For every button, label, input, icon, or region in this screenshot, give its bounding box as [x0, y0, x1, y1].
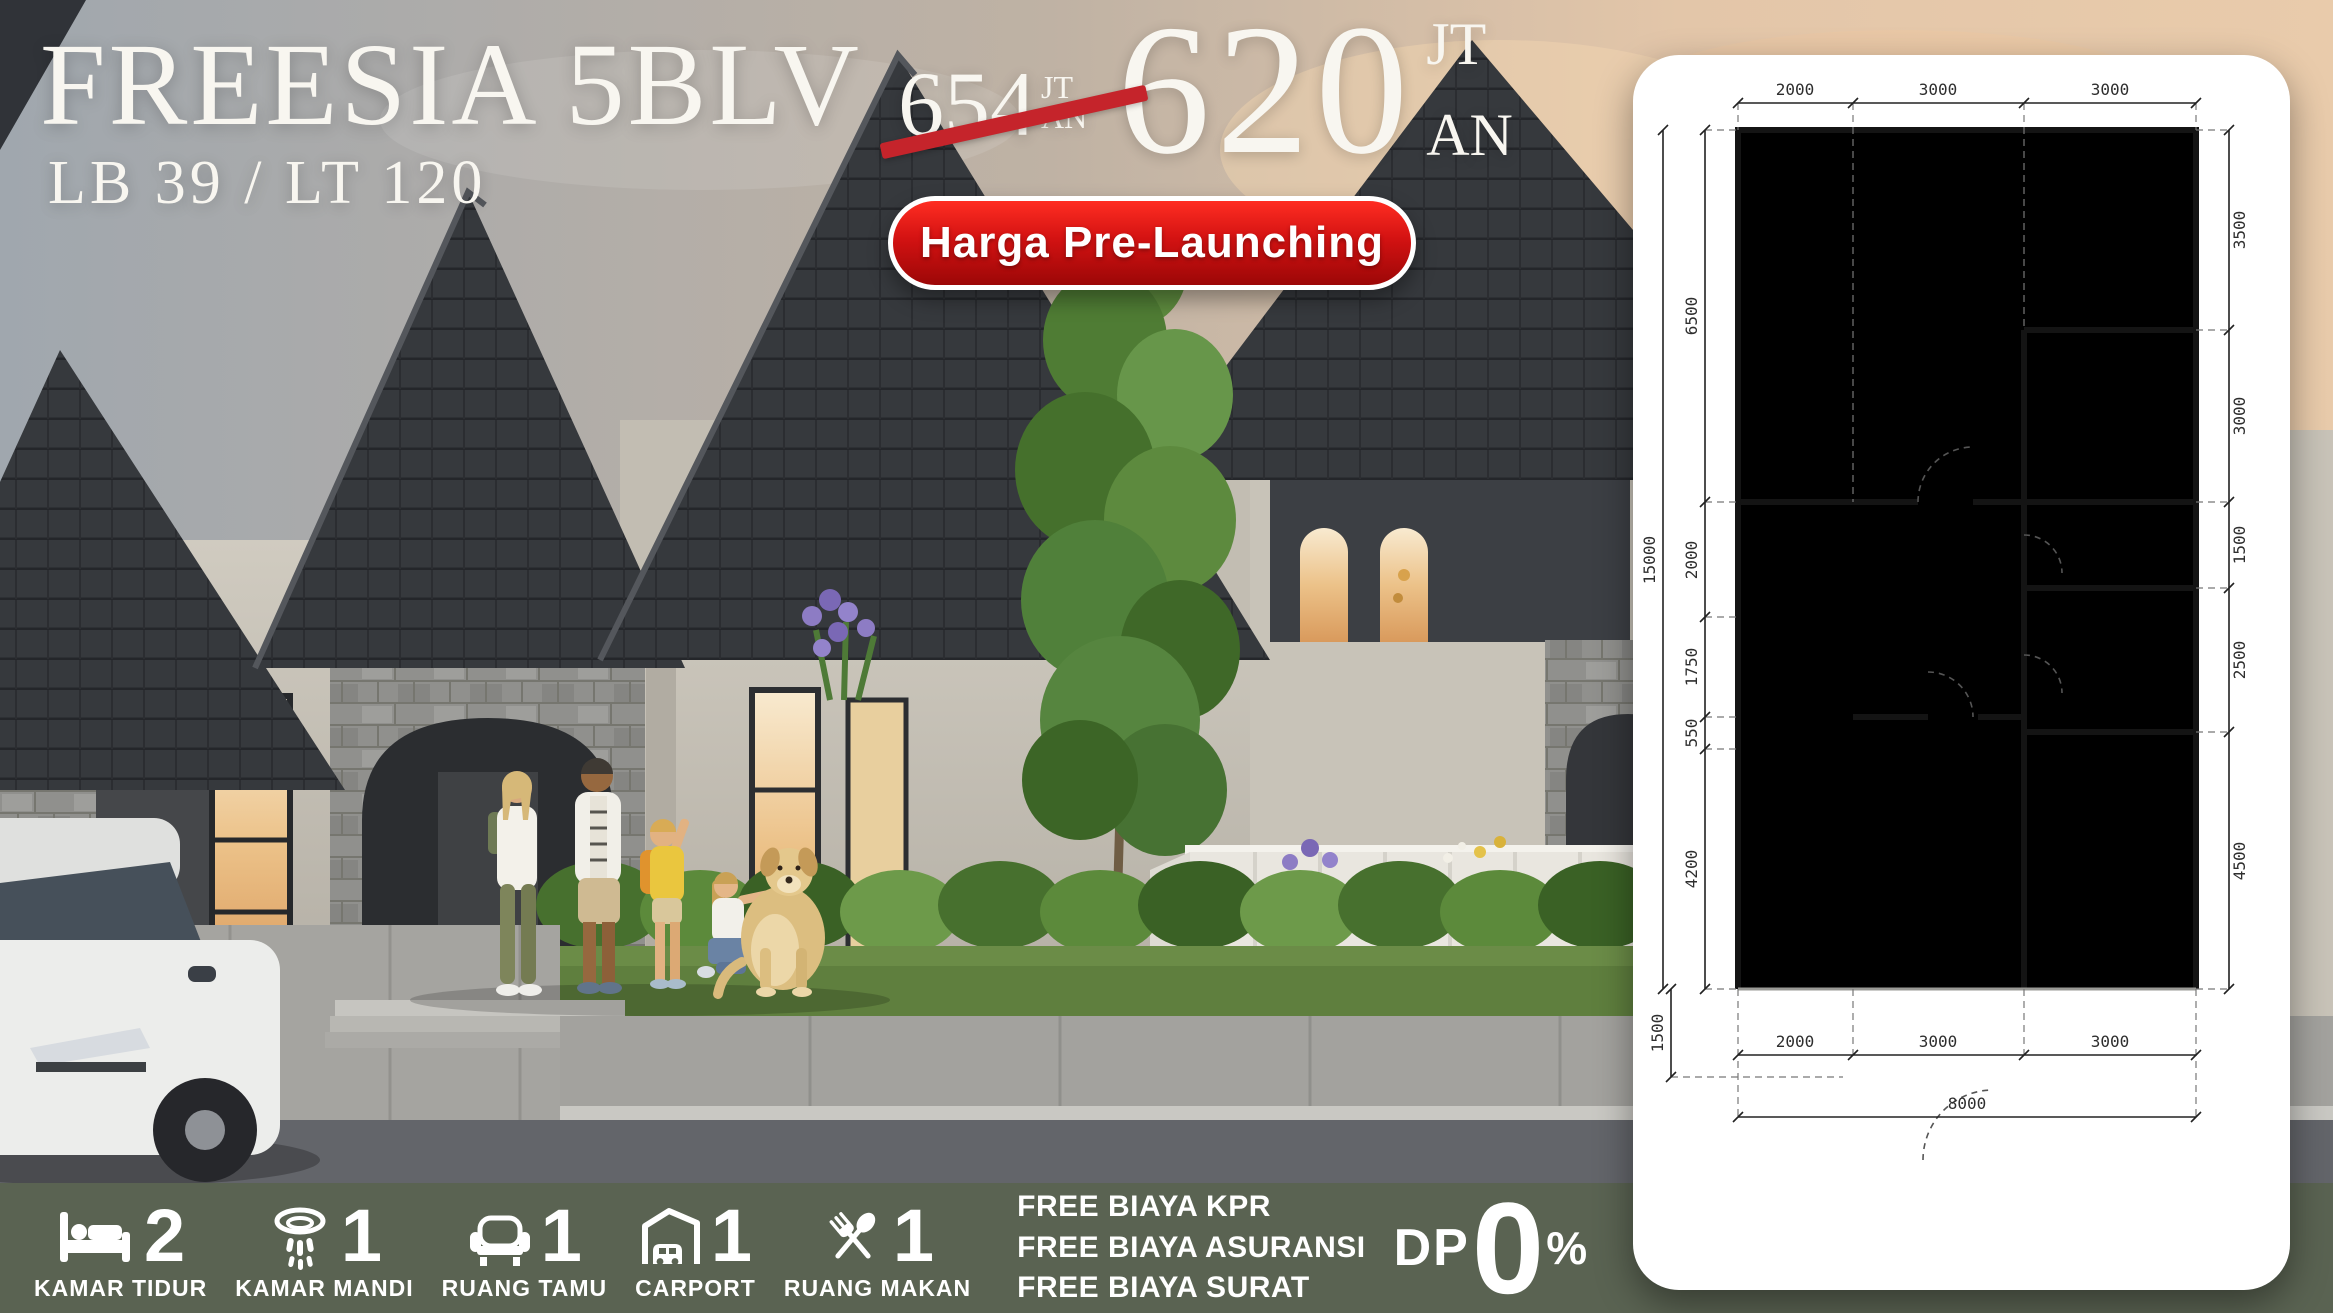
feature-bedrooms-label: KAMAR TIDUR — [34, 1275, 207, 1302]
dp-zero-promo: DP 0 % — [1394, 1190, 1587, 1307]
free-item-surat: FREE BIAYA SURAT — [1017, 1268, 1365, 1309]
page-title: FREESIA 5BLV — [40, 26, 862, 144]
plan-walls — [1738, 130, 2196, 989]
new-price-value: 620 — [1117, 12, 1414, 168]
dim-top-1: 2000 — [1776, 80, 1815, 99]
feature-bathrooms: 1 KAMAR MANDI — [235, 1194, 413, 1302]
floorplan-drawing: 2000 3000 3000 15000 1500 6500 2000 1750… — [1633, 55, 2290, 1290]
new-price-unit-jt: JT — [1426, 16, 1513, 73]
price-block: 654 JT AN 620 JT AN — [898, 12, 1513, 168]
spec-label: LB 39 / LT 120 — [48, 152, 486, 214]
dim-left-total: 15000 — [1640, 536, 1659, 584]
dim-left-3: 1750 — [1682, 648, 1701, 687]
feature-diningroom-label: RUANG MAKAN — [784, 1275, 971, 1302]
dim-bottom-3: 3000 — [2091, 1032, 2130, 1051]
dp-value: 0 — [1472, 1190, 1544, 1307]
dim-right-1: 3500 — [2230, 211, 2249, 250]
prelaunch-badge: Harga Pre-Launching — [888, 196, 1416, 290]
dp-prefix: DP — [1394, 1218, 1470, 1278]
sofa-icon — [467, 1206, 533, 1270]
dim-left-2: 2000 — [1682, 541, 1701, 580]
old-price-unit-jt: JT — [1041, 72, 1087, 102]
dim-top-2: 3000 — [1919, 80, 1958, 99]
feature-carport: 1 CARPORT — [635, 1194, 756, 1302]
feature-bathrooms-label: KAMAR MANDI — [235, 1275, 413, 1302]
feature-diningroom: 1 RUANG MAKAN — [784, 1194, 971, 1302]
dim-right-2: 3000 — [2230, 397, 2249, 436]
feature-carport-label: CARPORT — [635, 1275, 756, 1302]
free-item-asuransi: FREE BIAYA ASURANSI — [1017, 1228, 1365, 1269]
free-benefits-list: FREE BIAYA KPR FREE BIAYA ASURANSI FREE … — [1017, 1187, 1365, 1309]
dim-top-3: 3000 — [2091, 80, 2130, 99]
promo-poster: FREESIA 5BLV LB 39 / LT 120 654 JT AN 62… — [0, 0, 2333, 1313]
dim-right-3: 1500 — [2230, 526, 2249, 565]
feature-diningroom-count: 1 — [893, 1202, 934, 1270]
feature-bathrooms-count: 1 — [341, 1202, 382, 1270]
dim-right-5: 4500 — [2230, 842, 2249, 881]
cutlery-icon — [821, 1206, 885, 1270]
dp-percent: % — [1546, 1221, 1587, 1275]
prelaunch-badge-label: Harga Pre-Launching — [920, 218, 1384, 268]
feature-carport-count: 1 — [711, 1202, 752, 1270]
carport-icon — [639, 1206, 703, 1270]
shower-icon — [267, 1206, 333, 1270]
dim-left-5: 4200 — [1682, 850, 1701, 889]
floorplan-card: 2000 3000 3000 15000 1500 6500 2000 1750… — [1633, 55, 2290, 1290]
bed-icon — [56, 1206, 136, 1270]
dim-left-4: 550 — [1682, 719, 1701, 748]
dim-left-front: 1500 — [1648, 1014, 1667, 1053]
feature-bedrooms: 2 KAMAR TIDUR — [34, 1194, 207, 1302]
feature-bedrooms-count: 2 — [144, 1202, 185, 1270]
dim-bottom-2: 3000 — [1919, 1032, 1958, 1051]
dim-right-4: 2500 — [2230, 641, 2249, 680]
dim-left-1: 6500 — [1682, 297, 1701, 336]
free-item-kpr: FREE BIAYA KPR — [1017, 1187, 1365, 1228]
feature-livingroom-count: 1 — [541, 1202, 582, 1270]
old-price: 654 JT AN — [898, 58, 1087, 150]
new-price-unit-an: AN — [1426, 107, 1513, 164]
feature-livingroom-label: RUANG TAMU — [442, 1275, 607, 1302]
feature-livingroom: 1 RUANG TAMU — [442, 1194, 607, 1302]
dim-bottom-total: 8000 — [1948, 1094, 1987, 1113]
dim-bottom-1: 2000 — [1776, 1032, 1815, 1051]
new-price: 620 JT AN — [1117, 12, 1513, 168]
